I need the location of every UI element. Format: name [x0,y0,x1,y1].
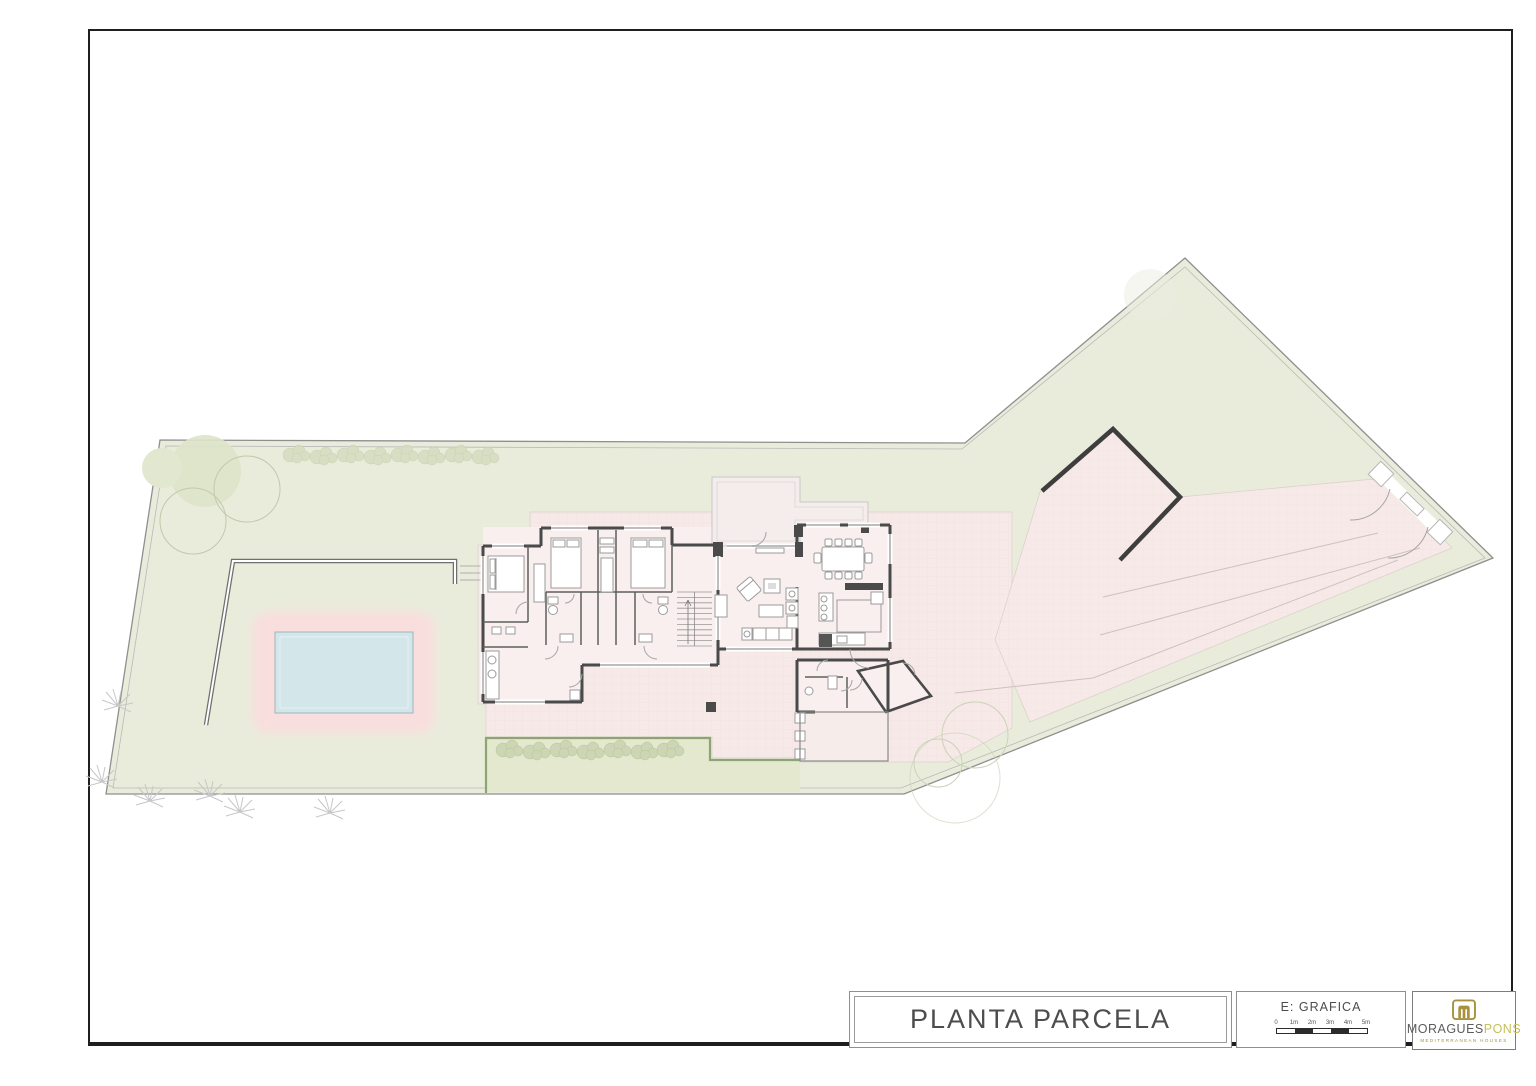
scale-tick-2: 2m [1308,1020,1316,1026]
scale-tick-0: 0 [1274,1020,1277,1026]
scale-tick-labels: 0 1m 2m 3m 4m 5m [1276,1020,1366,1028]
kitchen-wall-counter [845,583,883,590]
scale-tick-3: 3m [1326,1020,1334,1026]
logo-brand-primary: MORAGUES [1407,1022,1484,1036]
bed-2 [551,538,581,588]
scale-tick-5: 5m [1362,1020,1370,1026]
site-plan-drawing [0,0,1536,1086]
scale-tick-1: 1m [1290,1020,1298,1026]
title-block-logo-box: MORAGUESPONS MEDITERRANEAN HOUSES [1412,991,1516,1050]
scale-tick-4: 4m [1344,1020,1352,1026]
title-block-scale-box: E: GRAFICA 0 1m 2m 3m 4m 5m [1236,991,1406,1048]
pool-area [253,612,434,733]
logo-brand: MORAGUESPONS [1407,1022,1521,1036]
scale-label: E: GRAFICA [1281,1000,1362,1014]
title-box-inner: PLANTA PARCELA [854,996,1227,1043]
bed-3 [631,538,665,588]
bed-master [488,556,524,592]
logo-brand-secondary: PONS [1484,1022,1521,1036]
moraguespons-logo-icon [1451,999,1477,1020]
pool [275,632,413,713]
drawing-title: PLANTA PARCELA [910,1004,1171,1035]
wardrobe-2 [534,564,545,602]
graphic-scale-bar: 0 1m 2m 3m 4m 5m [1276,1020,1366,1038]
logo-tagline: MEDITERRANEAN HOUSES [1420,1038,1507,1043]
title-block-title-box: PLANTA PARCELA [849,991,1232,1048]
scale-segments [1276,1028,1368,1034]
